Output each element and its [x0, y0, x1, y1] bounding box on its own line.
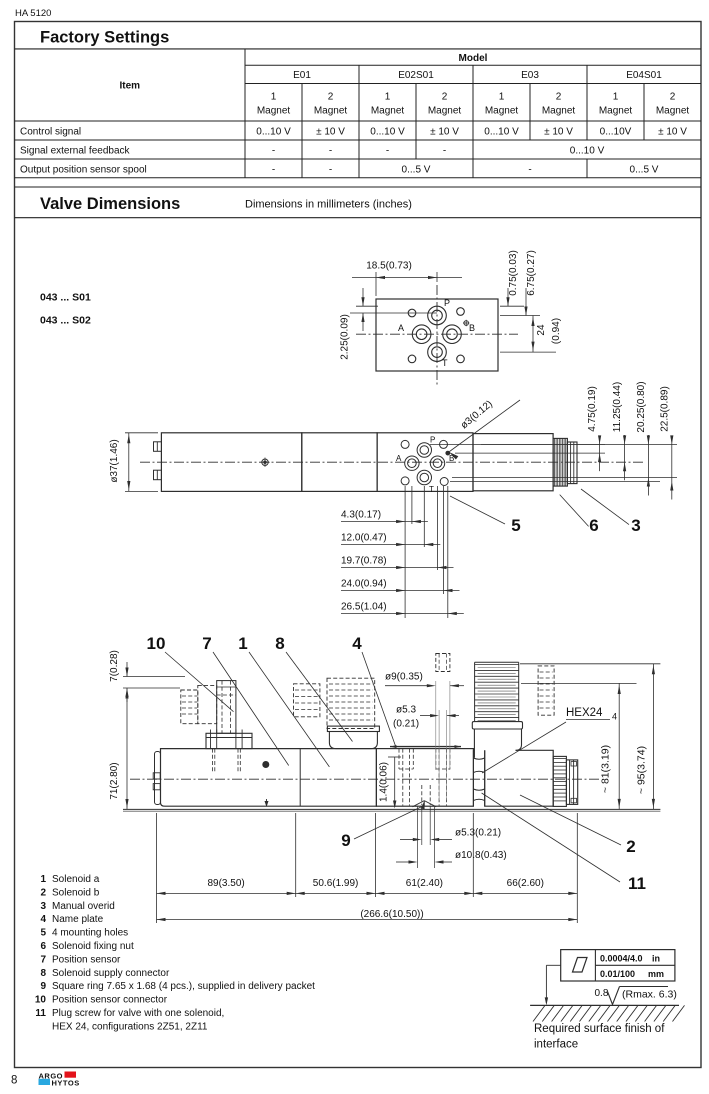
svg-text:043 ... S01: 043 ... S01 — [40, 292, 91, 304]
svg-text:Magnet: Magnet — [371, 106, 405, 117]
svg-text:5: 5 — [511, 516, 520, 535]
svg-text:Control signal: Control signal — [20, 127, 81, 138]
svg-text:Magnet: Magnet — [542, 106, 576, 117]
svg-text:Magnet: Magnet — [314, 106, 348, 117]
svg-text:0.75(0.03): 0.75(0.03) — [508, 250, 519, 296]
svg-text:-: - — [329, 146, 332, 157]
svg-text:ø5.3: ø5.3 — [396, 705, 416, 716]
svg-text:4: 4 — [40, 914, 46, 925]
svg-text:P: P — [430, 436, 435, 445]
svg-text:8: 8 — [11, 1075, 17, 1087]
svg-text:7: 7 — [202, 634, 211, 653]
svg-text:2: 2 — [670, 92, 676, 103]
svg-text:6: 6 — [40, 941, 46, 952]
svg-text:1: 1 — [238, 634, 247, 653]
svg-text:0.01/100: 0.01/100 — [600, 969, 635, 979]
svg-text:~ 95(3.74): ~ 95(3.74) — [636, 746, 648, 794]
svg-text:Manual overid: Manual overid — [52, 901, 115, 912]
svg-text:4 mounting holes: 4 mounting holes — [52, 928, 128, 939]
svg-text:(266.6(10.50)): (266.6(10.50)) — [360, 909, 423, 920]
svg-text:Name plate: Name plate — [52, 914, 104, 925]
svg-text:Plug screw for valve with one: Plug screw for valve with one solenoid, — [52, 1008, 224, 1019]
svg-text:ø5.3(0.21): ø5.3(0.21) — [455, 828, 501, 839]
svg-text:Valve Dimensions: Valve Dimensions — [40, 195, 180, 213]
svg-text:9: 9 — [341, 831, 350, 850]
svg-text:mm: mm — [648, 969, 664, 979]
svg-text:1: 1 — [499, 92, 505, 103]
svg-text:1: 1 — [385, 92, 391, 103]
svg-text:043 ... S02: 043 ... S02 — [40, 315, 91, 327]
svg-text:2: 2 — [328, 92, 334, 103]
svg-text:Solenoid b: Solenoid b — [52, 887, 100, 898]
svg-text:(Rmax. 6.3): (Rmax. 6.3) — [622, 989, 677, 1001]
svg-text:-: - — [329, 165, 332, 176]
svg-text:-: - — [272, 146, 275, 157]
svg-text:T: T — [429, 485, 434, 494]
svg-text:(0.21): (0.21) — [393, 719, 419, 730]
svg-text:22.5(0.89): 22.5(0.89) — [659, 386, 670, 432]
svg-text:2: 2 — [626, 837, 635, 856]
svg-text:ø9(0.35): ø9(0.35) — [385, 672, 423, 683]
svg-text:1: 1 — [40, 874, 46, 885]
svg-text:Magnet: Magnet — [485, 106, 519, 117]
svg-text:2.25(0.09): 2.25(0.09) — [340, 314, 351, 360]
svg-text:12.0(0.47): 12.0(0.47) — [341, 533, 387, 544]
svg-text:0...10 V: 0...10 V — [570, 146, 605, 157]
svg-text:66(2.60): 66(2.60) — [507, 878, 544, 889]
svg-text:Model: Model — [459, 53, 488, 64]
svg-text:1: 1 — [613, 92, 619, 103]
svg-text:ø37(1.46): ø37(1.46) — [109, 439, 120, 482]
svg-text:50.6(1.99): 50.6(1.99) — [313, 878, 359, 889]
svg-text:0...10 V: 0...10 V — [484, 127, 519, 138]
svg-text:E04S01: E04S01 — [626, 70, 662, 81]
svg-text:~ 81(3.19): ~ 81(3.19) — [600, 745, 612, 793]
svg-text:Solenoid fixing nut: Solenoid fixing nut — [52, 941, 134, 952]
svg-text:HA 5120: HA 5120 — [15, 8, 51, 19]
svg-text:10: 10 — [147, 634, 166, 653]
svg-text:E03: E03 — [521, 70, 539, 81]
svg-text:0...10 V: 0...10 V — [370, 127, 405, 138]
svg-text:in: in — [652, 954, 660, 964]
svg-text:8: 8 — [40, 968, 46, 979]
svg-text:(0.94): (0.94) — [551, 318, 562, 344]
svg-text:61(2.40): 61(2.40) — [406, 878, 443, 889]
svg-text:24: 24 — [536, 324, 547, 336]
svg-text:E02S01: E02S01 — [398, 70, 434, 81]
svg-text:± 10 V: ± 10 V — [544, 127, 573, 138]
svg-text:Position sensor: Position sensor — [52, 954, 121, 965]
svg-text:4: 4 — [612, 712, 617, 722]
svg-text:± 10 V: ± 10 V — [430, 127, 459, 138]
svg-text:-: - — [386, 146, 389, 157]
svg-text:Factory Settings: Factory Settings — [40, 29, 169, 47]
svg-text:Solenoid supply connector: Solenoid supply connector — [52, 968, 170, 979]
svg-text:89(3.50): 89(3.50) — [207, 878, 244, 889]
svg-text:20.25(0.80): 20.25(0.80) — [636, 381, 647, 432]
svg-text:T: T — [442, 358, 448, 368]
svg-text:7(0.28): 7(0.28) — [109, 650, 120, 682]
svg-text:5: 5 — [40, 928, 46, 939]
svg-text:E01: E01 — [293, 70, 311, 81]
svg-text:HEX 24, configurations 2Z51, 2: HEX 24, configurations 2Z51, 2Z11 — [52, 1021, 208, 1032]
svg-text:2: 2 — [40, 887, 46, 898]
svg-text:Magnet: Magnet — [428, 106, 462, 117]
svg-text:18.5(0.73): 18.5(0.73) — [366, 261, 412, 272]
svg-text:4: 4 — [352, 634, 362, 653]
svg-text:Required surface finish of: Required surface finish of — [534, 1023, 665, 1035]
svg-text:4.3(0.17): 4.3(0.17) — [341, 510, 381, 521]
svg-text:10: 10 — [35, 995, 47, 1006]
svg-text:24.0(0.94): 24.0(0.94) — [341, 579, 387, 590]
svg-text:0...5 V: 0...5 V — [402, 165, 431, 176]
svg-text:0.0004/4.0: 0.0004/4.0 — [600, 954, 643, 964]
svg-text:interface: interface — [534, 1039, 578, 1051]
svg-text:P: P — [444, 298, 450, 308]
svg-text:0.8: 0.8 — [595, 988, 609, 999]
svg-text:3: 3 — [631, 516, 640, 535]
svg-text:0...10 V: 0...10 V — [256, 127, 291, 138]
svg-text:B: B — [469, 323, 475, 333]
svg-text:Solenoid a: Solenoid a — [52, 874, 100, 885]
svg-text:Magnet: Magnet — [257, 106, 291, 117]
svg-text:Signal external feedback: Signal external feedback — [20, 146, 131, 157]
svg-text:6.75(0.27): 6.75(0.27) — [526, 250, 537, 296]
svg-text:A: A — [398, 323, 404, 333]
svg-text:HEX24: HEX24 — [566, 707, 603, 719]
svg-text:A: A — [396, 454, 402, 463]
svg-text:26.5(1.04): 26.5(1.04) — [341, 602, 387, 613]
svg-text:11: 11 — [628, 874, 646, 893]
svg-text:± 10 V: ± 10 V — [316, 127, 345, 138]
svg-text:2: 2 — [442, 92, 448, 103]
svg-text:71(2.80): 71(2.80) — [109, 762, 120, 799]
svg-text:HYTOS: HYTOS — [52, 1079, 80, 1088]
svg-text:9: 9 — [40, 981, 46, 992]
svg-text:ø3(0.12): ø3(0.12) — [459, 399, 495, 432]
svg-text:± 10 V: ± 10 V — [658, 127, 687, 138]
svg-text:0...5 V: 0...5 V — [630, 165, 659, 176]
svg-text:8: 8 — [275, 634, 284, 653]
svg-text:Square ring 7.65 x 1.68 (4 pcs: Square ring 7.65 x 1.68 (4 pcs.), suppli… — [52, 981, 315, 992]
svg-text:0...10V: 0...10V — [600, 127, 632, 138]
svg-text:Magnet: Magnet — [599, 106, 633, 117]
svg-text:Magnet: Magnet — [656, 106, 690, 117]
svg-text:11: 11 — [35, 1008, 46, 1019]
svg-text:19.7(0.78): 19.7(0.78) — [341, 556, 387, 567]
svg-text:4.75(0.19): 4.75(0.19) — [587, 386, 598, 432]
svg-text:11.25(0.44): 11.25(0.44) — [612, 382, 623, 432]
svg-text:-: - — [272, 165, 275, 176]
svg-text:Item: Item — [120, 81, 141, 92]
svg-text:Output position sensor spool: Output position sensor spool — [20, 165, 147, 176]
svg-text:-: - — [528, 165, 531, 176]
svg-text:Position sensor connector: Position sensor connector — [52, 995, 168, 1006]
svg-text:3: 3 — [40, 901, 46, 912]
svg-text:ø10.8(0.43): ø10.8(0.43) — [455, 850, 507, 861]
svg-text:7: 7 — [40, 954, 46, 965]
svg-text:1.4(0.06): 1.4(0.06) — [379, 762, 390, 802]
svg-text:1: 1 — [271, 92, 277, 103]
svg-text:-: - — [443, 146, 446, 157]
svg-text:2: 2 — [556, 92, 562, 103]
svg-text:6: 6 — [589, 516, 598, 535]
svg-text:Dimensions in millimeters (inc: Dimensions in millimeters (inches) — [245, 199, 412, 211]
